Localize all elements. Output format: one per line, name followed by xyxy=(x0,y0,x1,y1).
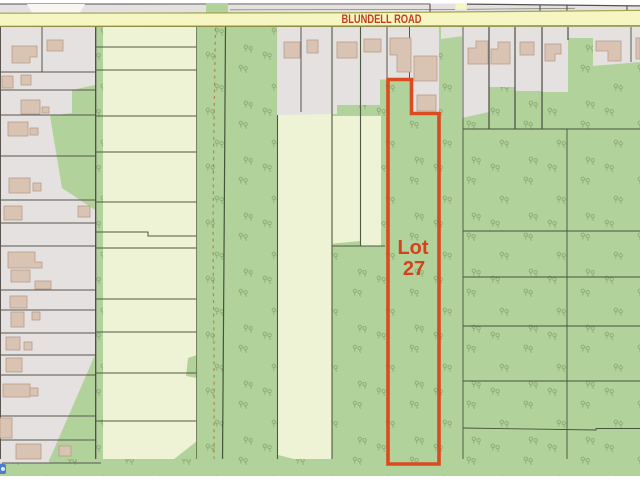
svg-text:Lot: Lot xyxy=(397,237,428,259)
svg-text:BLUNDELL ROAD: BLUNDELL ROAD xyxy=(342,12,422,26)
svg-text:27: 27 xyxy=(403,258,425,280)
